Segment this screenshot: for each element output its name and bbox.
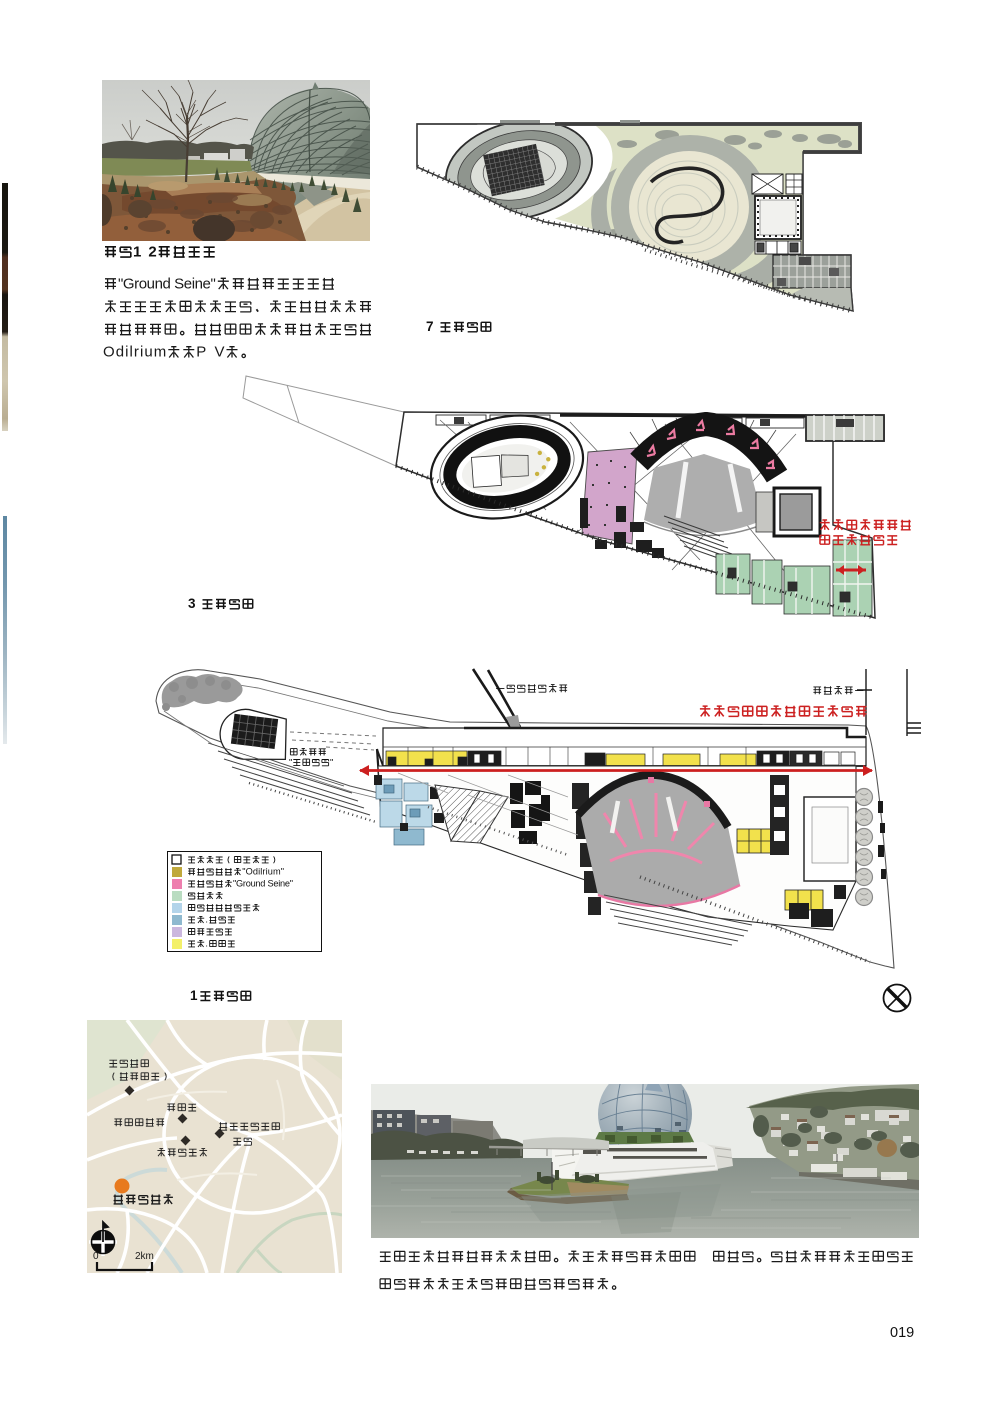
- svg-text:3: 3: [188, 596, 196, 611]
- svg-text:PV: PV: [196, 344, 224, 361]
- svg-text:.: .: [205, 939, 208, 949]
- svg-text:Odilrium: Odilrium: [103, 344, 166, 361]
- svg-text:": ": [330, 757, 333, 768]
- svg-text:"Ground Seine": "Ground Seine": [233, 879, 293, 889]
- svg-text:"Ground Seine": "Ground Seine": [118, 275, 216, 292]
- svg-text:1: 1: [190, 988, 198, 1003]
- svg-text:": ": [289, 757, 292, 768]
- svg-text:12: 12: [133, 243, 157, 260]
- svg-text:7: 7: [426, 319, 434, 334]
- svg-text:"Odilrium": "Odilrium": [242, 867, 284, 877]
- svg-text:.: .: [205, 915, 208, 925]
